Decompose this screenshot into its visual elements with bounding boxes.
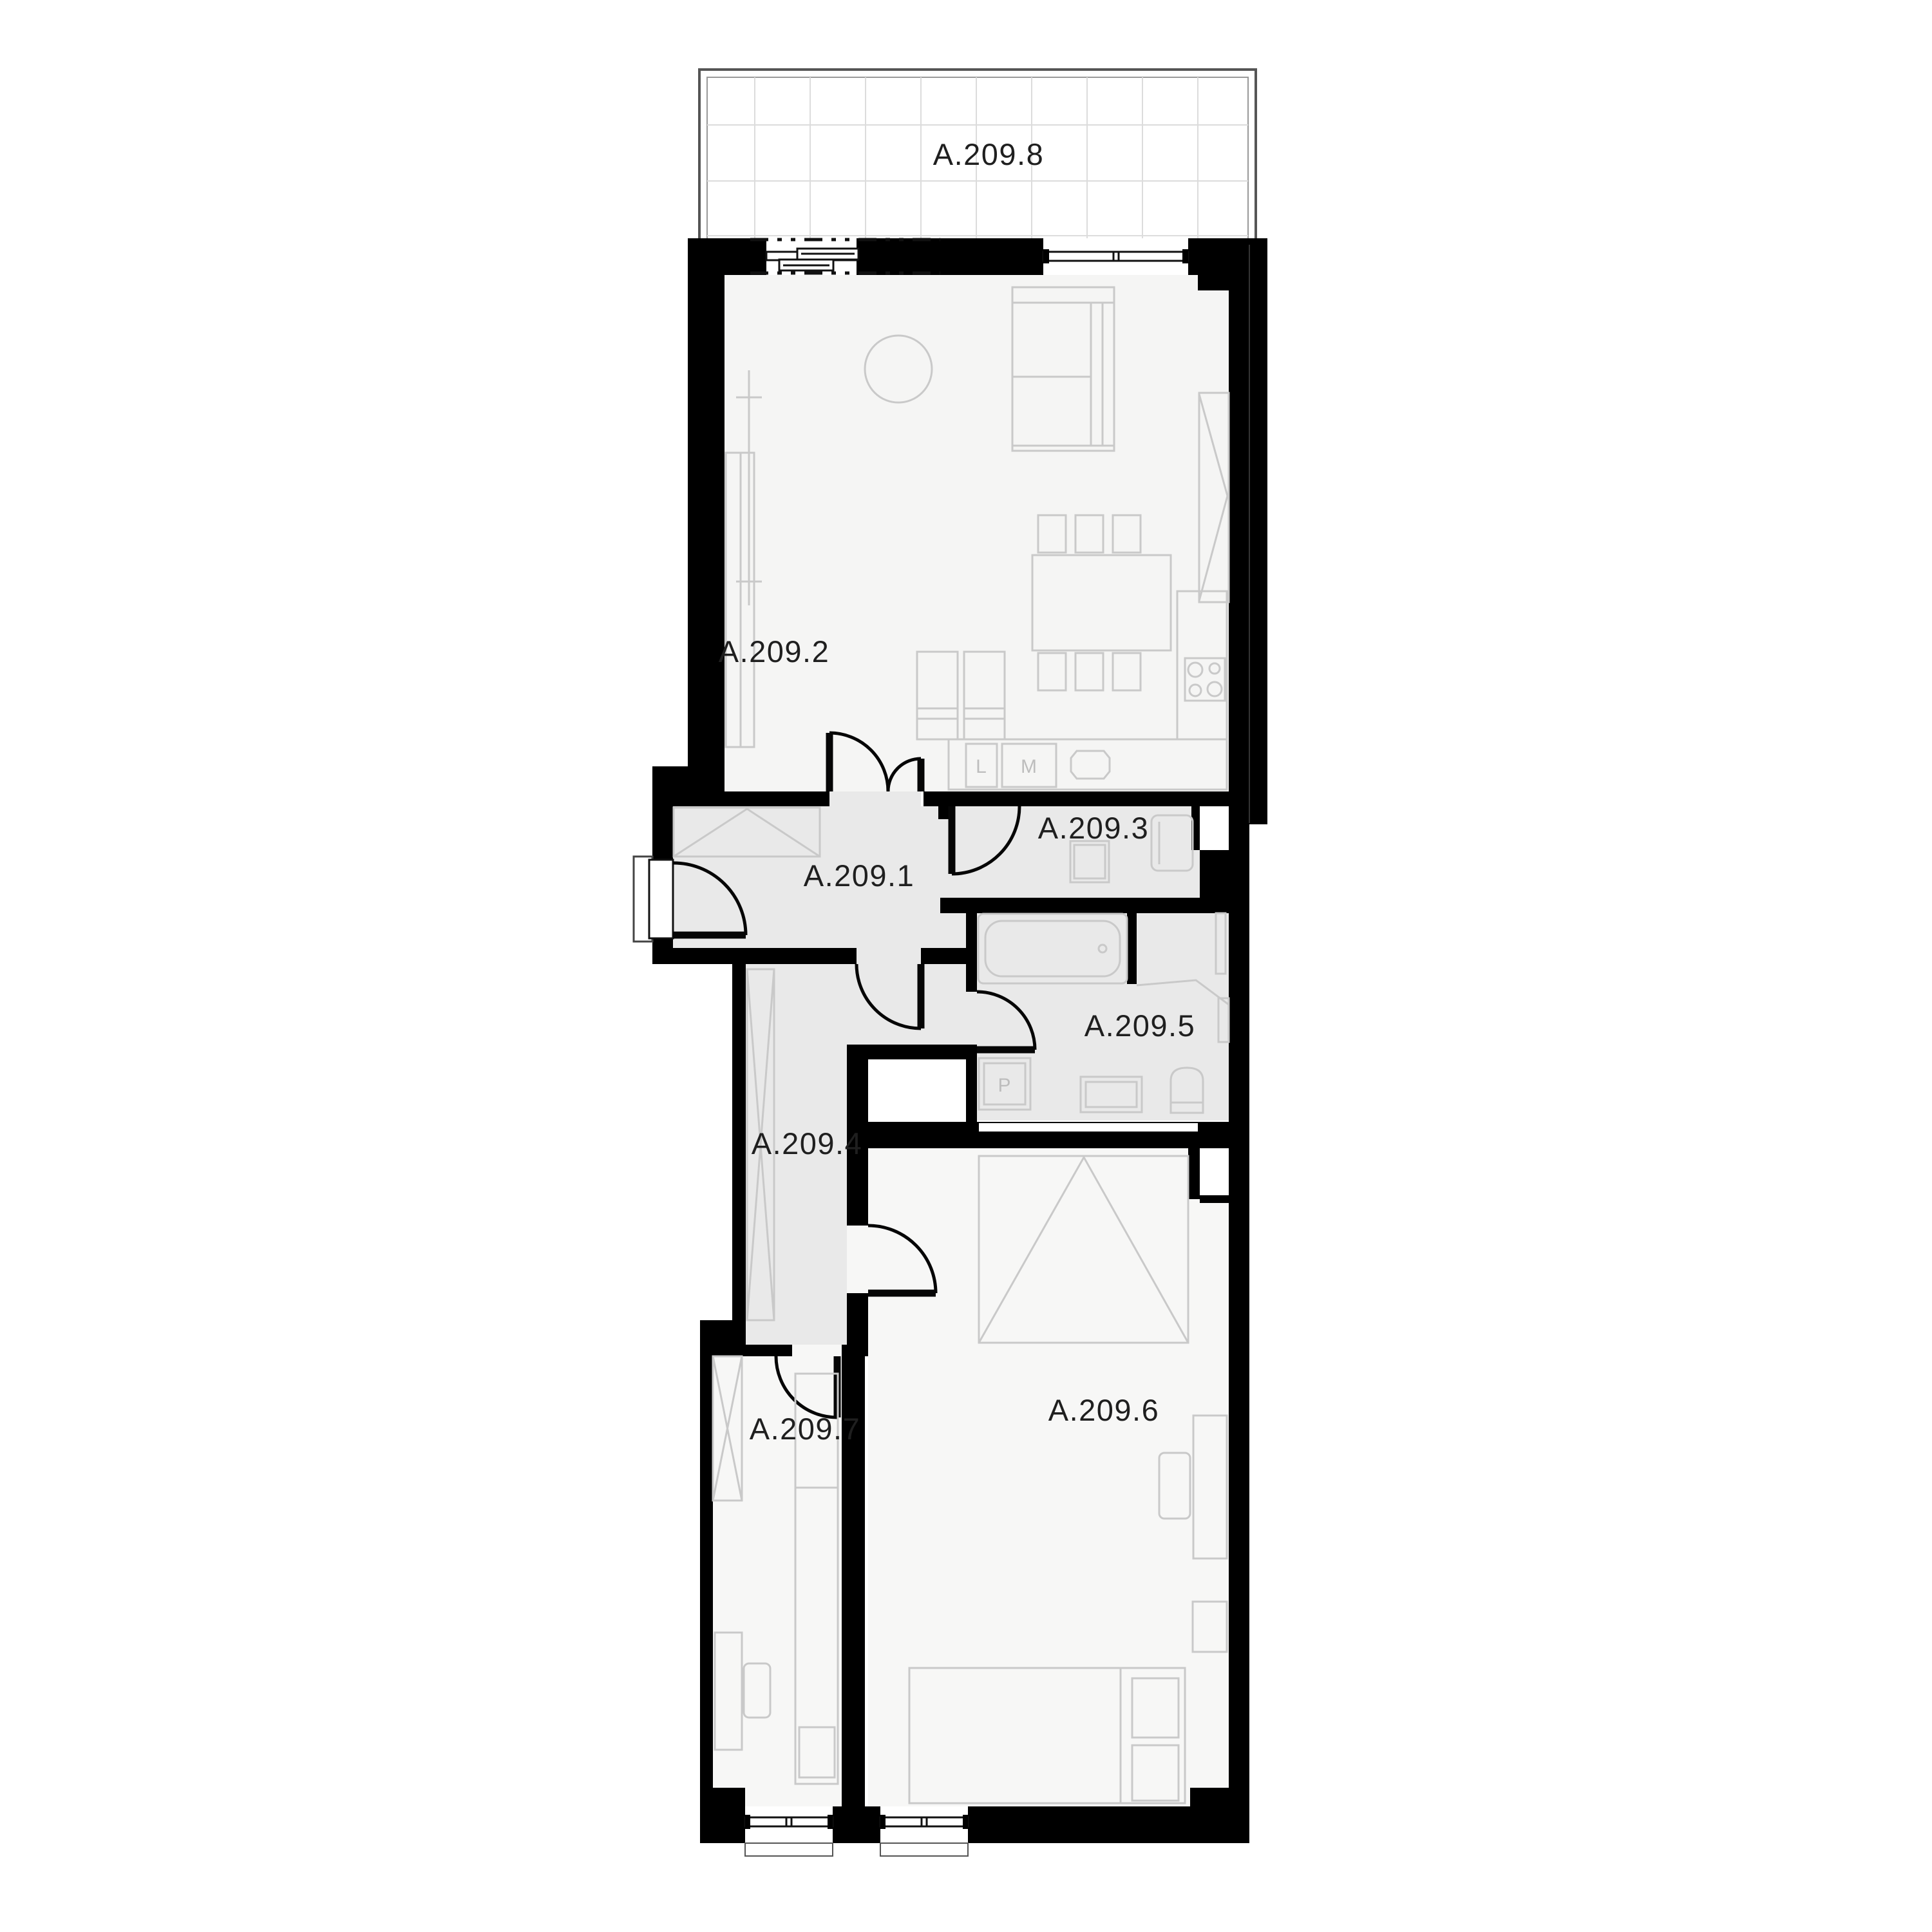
floor-patch-doubledoor <box>829 791 921 806</box>
label-dishwasher: L <box>976 756 987 777</box>
room-label-wc: A.209.3 <box>1038 811 1150 845</box>
window-bedroom7 <box>745 1806 833 1856</box>
floor-patch-corridor-door <box>857 948 921 964</box>
window-bedroom6 <box>880 1806 968 1856</box>
room-floor-bedroom-6 <box>868 1148 1229 1806</box>
room-floor-living <box>724 275 1229 791</box>
room-floor-corridor-lower <box>746 1048 847 1345</box>
room-label-hall: A.209.1 <box>804 858 915 893</box>
floor-plan-page: A.209.8 A.209.2 A.209.3 A.209.1 A.209.5 … <box>0 0 1932 1932</box>
floor-patch-bath-door <box>966 992 977 1050</box>
label-washer-bathroom: P <box>998 1075 1011 1096</box>
room-label-corridor: A.209.4 <box>752 1126 863 1160</box>
entrance-opening <box>649 860 673 938</box>
wall-cavity-line <box>979 1123 1198 1132</box>
label-washer-kitchen: M <box>1021 756 1037 777</box>
floor-plan-svg: A.209.8 A.209.2 A.209.3 A.209.1 A.209.5 … <box>0 0 1932 1932</box>
room-label-terrace: A.209.8 <box>933 137 1045 171</box>
floor-patch-bed6-door <box>847 1226 868 1293</box>
room-label-living: A.209.2 <box>719 634 830 668</box>
shaft-bedroom6 <box>1200 1148 1229 1195</box>
shaft-void <box>868 1059 966 1122</box>
room-label-bedroom6: A.209.6 <box>1048 1393 1160 1427</box>
living-window-frame <box>1043 252 1188 261</box>
room-label-bedroom7: A.209.7 <box>750 1412 861 1446</box>
floor-patch-bed7-door <box>792 1345 842 1356</box>
room-floor-corridor-upper <box>746 964 966 1048</box>
room-label-bathroom: A.209.5 <box>1084 1009 1196 1043</box>
